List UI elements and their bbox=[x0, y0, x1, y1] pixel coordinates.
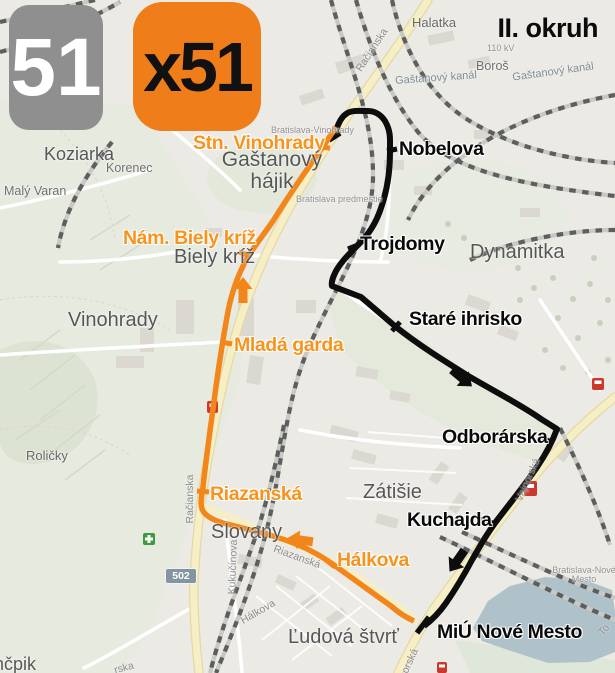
street-label-racianska: Račianska bbox=[184, 474, 196, 523]
map-label-biely-kriz: Biely kríž bbox=[174, 246, 255, 269]
stop-label-halkova: Hálkova bbox=[337, 549, 409, 572]
route-badge-51-label: 51 bbox=[10, 21, 101, 115]
map-label-ludova-stvrt: Ľudová štvrť bbox=[288, 626, 399, 649]
map-label-bratislava-vinohrady: Bratislava-Vinohrady bbox=[271, 125, 354, 135]
map-label-koziarka: Koziarka bbox=[44, 144, 114, 165]
map-label-110kv: 110 kV bbox=[487, 43, 514, 53]
route-badge-x51: x51 bbox=[133, 2, 261, 131]
map-label-maly-varan: Malý Varan bbox=[4, 184, 66, 198]
stop-label-stare-ihrisko: Staré ihrisko bbox=[409, 308, 522, 331]
map-label-gastanovy-hajik: Gaštanový hájik bbox=[207, 149, 337, 193]
map-label-dynamitka: Dynamitka bbox=[470, 241, 564, 264]
stop-label-mlada-garda: Mladá garda bbox=[234, 334, 343, 357]
map-label-vinohrady: Vinohrady bbox=[68, 309, 158, 332]
map-label-zatisie: Zátišie bbox=[363, 481, 422, 504]
stop-label-kuchajda: Kuchajda bbox=[407, 509, 492, 532]
map-label-rolicky: Roličky bbox=[26, 448, 68, 463]
stop-label-trojdomy: Trojdomy bbox=[360, 233, 445, 256]
map-label-slovany: Slovany bbox=[211, 521, 282, 544]
route-badge-51: 51 bbox=[9, 5, 103, 130]
map-label-boros: Boroš bbox=[476, 59, 509, 73]
map-label-bratislava-predmestie: Bratislava predmestie bbox=[296, 194, 383, 204]
map-label-bratislava-nove-mesto: Bratislava-Nové Mesto bbox=[549, 566, 615, 585]
stop-label-nobelova: Nobelova bbox=[399, 138, 484, 161]
stop-label-odborarska: Odborárska bbox=[442, 426, 547, 449]
map-label-korenec: Korenec bbox=[106, 161, 153, 175]
street-label-kukucinova: Kukučínova bbox=[226, 539, 240, 594]
route-badge-x51-label: x51 bbox=[143, 27, 251, 107]
map-label-ncpik: nčpik bbox=[0, 654, 36, 673]
pharmacy-icon bbox=[143, 533, 155, 545]
stop-label-miu-nove-mesto: MiÚ Nové Mesto bbox=[437, 621, 582, 644]
map-label-halatka: Halatka bbox=[412, 15, 456, 30]
road-number-badge: 502 bbox=[165, 568, 197, 584]
stop-label-riazanska: Riazanská bbox=[210, 483, 302, 506]
route-diversion-map: 51 x51 II. okruh Stn. Vinohrady Nám. Bie… bbox=[0, 0, 615, 673]
page-title: II. okruh bbox=[497, 13, 598, 44]
